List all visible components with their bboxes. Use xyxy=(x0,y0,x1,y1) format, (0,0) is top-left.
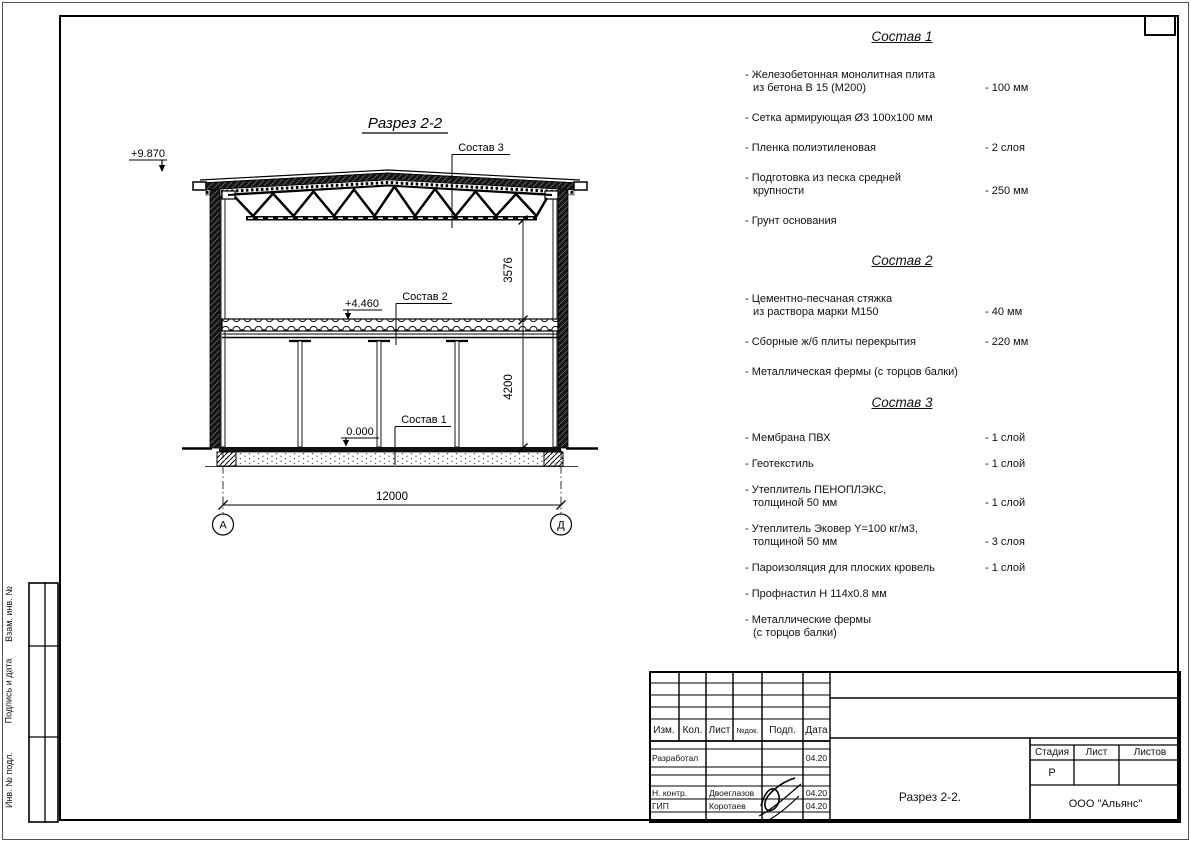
right-foundation xyxy=(544,452,563,466)
right-wall xyxy=(558,190,568,448)
composition-list-1: Состав 1 - Железобетонная монолитная пли… xyxy=(745,30,1059,228)
tb-doc-title: Разрез 2-2. xyxy=(830,781,1030,813)
tb-header-izm: Изм. xyxy=(649,719,679,741)
list-item: - Цементно-песчаная стяжкаиз раствора ма… xyxy=(745,293,1059,319)
elevation-ground: 0.000 xyxy=(341,426,379,447)
tb-date-ncontrol: 04.20 xyxy=(803,786,830,799)
axis-label-right: Д xyxy=(557,520,565,532)
left-wall xyxy=(210,190,220,448)
composition-list-3: Состав 3 - Мембрана ПВХ - 1 слой - Геоте… xyxy=(745,396,1059,640)
svg-text:0.000: 0.000 xyxy=(346,426,374,438)
list-item: - Сборные ж/б плиты перекрытия - 220 мм xyxy=(745,336,1059,349)
signature xyxy=(755,770,807,824)
list-item: - Металлическая фермы (с торцов балки) xyxy=(745,366,1059,379)
sand-bed xyxy=(236,452,544,466)
svg-text:Состав 3: Состав 3 xyxy=(458,142,504,154)
tb-stage-value: Р xyxy=(1030,760,1074,785)
list-item: - Грунт основания xyxy=(745,215,1059,228)
tb-company: ООО "Альянс" xyxy=(1030,785,1181,823)
list-item: - Сетка армирующая Ø3 100х100 мм xyxy=(745,112,1059,125)
svg-text:Состав 1: Состав 1 xyxy=(401,414,447,426)
composition-list-2: Состав 2 - Цементно-песчаная стяжкаиз ра… xyxy=(745,254,1059,379)
list-item: - Мембрана ПВХ - 1 слой xyxy=(745,432,1059,445)
composition-2-title: Состав 2 xyxy=(745,254,1059,267)
list-item: - Железобетонная монолитная плитаиз бето… xyxy=(745,69,1059,95)
dim-4200: 4200 xyxy=(503,374,515,400)
list-item: - Металлические фермы(с торцов балки) xyxy=(745,614,1059,640)
tb-header-list: Лист xyxy=(706,719,733,741)
tb-role-developer: Разработал xyxy=(649,749,706,767)
composition-3-title: Состав 3 xyxy=(745,396,1059,409)
floor-slab xyxy=(222,319,558,331)
ground-slab-top xyxy=(219,447,561,452)
stamp-vzam-inv: Взам. инв. № xyxy=(3,582,15,646)
dim-12000: 12000 xyxy=(376,491,408,503)
tb-sheet-label: Лист xyxy=(1074,745,1119,760)
elevation-floor: +4.460 xyxy=(343,298,382,320)
stamp-podpis-data: Подпись и дата xyxy=(3,646,15,737)
list-item: - Профнастил Н 114х0.8 мм xyxy=(745,588,1059,601)
list-item: - Геотекстиль - 1 слой xyxy=(745,458,1059,471)
dim-3576: 3576 xyxy=(503,257,515,283)
list-item: - Подготовка из песка среднейкрупности -… xyxy=(745,172,1059,198)
tb-header-data: Дата xyxy=(803,719,830,741)
left-foundation xyxy=(217,452,236,466)
tb-date-developer: 04.20 xyxy=(803,749,830,767)
svg-text:Состав 2: Состав 2 xyxy=(402,291,448,303)
tb-date-gip: 04.20 xyxy=(803,799,830,812)
side-stamp-grid xyxy=(28,582,59,823)
tb-role-ncontrol: Н. контр. xyxy=(649,786,706,799)
tb-name-developer xyxy=(706,749,762,767)
side-stamp-column xyxy=(28,582,59,823)
tb-header-kol: Кол. xyxy=(679,719,706,741)
tb-sheets-label: Листов xyxy=(1119,745,1181,760)
axis-label-left: А xyxy=(219,520,227,532)
svg-text:+9.870: +9.870 xyxy=(131,148,165,160)
stamp-inv-podl: Инв. № подл. xyxy=(3,737,15,823)
elevation-roof: +9.870 xyxy=(129,148,167,172)
list-item: - Утеплитель Эковер Y=100 кг/м3,толщиной… xyxy=(745,523,1059,549)
interior-columns xyxy=(289,341,468,447)
tb-name-gip: Коротаев xyxy=(706,799,762,812)
roof-right-end-cap xyxy=(574,182,587,190)
title-block: Изм. Кол. Лист №док. Подп. Дата Разработ… xyxy=(649,671,1181,823)
drawing-title: Разрез 2-2 xyxy=(368,115,443,132)
tb-header-ndok: №док. xyxy=(733,719,762,741)
drawing-sheet: Разрез 2-2 xyxy=(0,0,1191,842)
list-item: - Пленка полиэтиленовая - 2 слоя xyxy=(745,142,1059,155)
tb-stage-label: Стадия xyxy=(1030,745,1074,760)
roof-left-end-cap xyxy=(193,182,206,190)
tb-name-ncontrol: Двоеглазов xyxy=(706,786,762,799)
svg-text:+4.460: +4.460 xyxy=(345,298,379,310)
tb-header-podp: Подп. xyxy=(762,719,803,741)
list-item: - Пароизоляция для плоских кровель - 1 с… xyxy=(745,562,1059,575)
list-item: - Утеплитель ПЕНОПЛЭКС,толщиной 50 мм - … xyxy=(745,484,1059,510)
tb-role-gip: ГИП xyxy=(649,799,706,812)
composition-1-title: Состав 1 xyxy=(745,30,1059,43)
